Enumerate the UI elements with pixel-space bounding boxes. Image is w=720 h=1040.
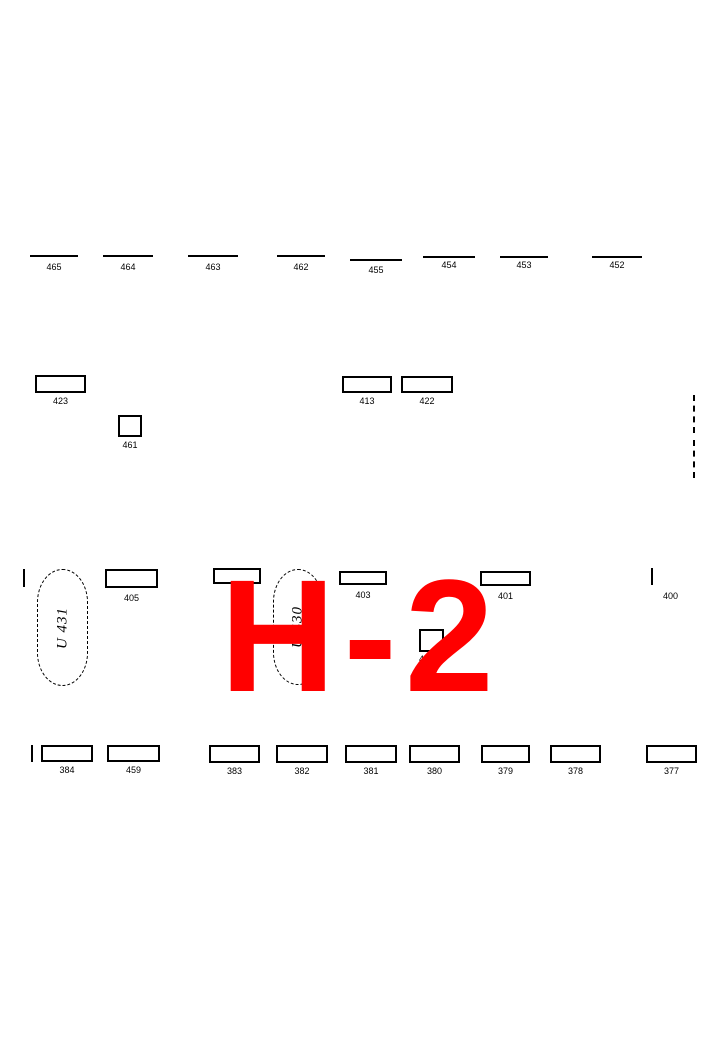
plot-rect	[276, 745, 328, 763]
section-title: H-2	[220, 556, 502, 716]
plot-rect	[481, 745, 530, 763]
plot-line	[103, 255, 153, 257]
plot-number: 379	[469, 767, 542, 776]
plot-number: 405	[93, 594, 170, 603]
plot-rect	[345, 745, 397, 763]
plot-line	[188, 255, 238, 257]
plot-number: 400	[663, 592, 678, 601]
plot-number: 462	[277, 263, 325, 272]
plot-number: 452	[592, 261, 642, 270]
cemetery-section-map: H-2 465464463462455454453452423413422461…	[0, 0, 720, 1040]
boundary-dashed-line	[693, 395, 695, 433]
plot-rect	[646, 745, 697, 763]
plot-number: 464	[103, 263, 153, 272]
plot-number: 383	[197, 767, 272, 776]
plot-rect	[105, 569, 158, 588]
plot-number: 465	[30, 263, 78, 272]
plot-number: 382	[264, 767, 340, 776]
plot-number: 380	[397, 767, 472, 776]
plot-line	[277, 255, 325, 257]
plot-rect	[209, 745, 260, 763]
plot-rect	[118, 415, 142, 437]
plot-number: 461	[106, 441, 154, 450]
plot-number: 454	[423, 261, 475, 270]
plot-number: 384	[29, 766, 105, 775]
row-edge-tick	[31, 745, 33, 762]
plot-line	[350, 259, 402, 261]
plot-line	[30, 255, 78, 257]
plot-number: 423	[23, 397, 98, 406]
plot-rect	[550, 745, 601, 763]
row-edge-tick	[23, 569, 25, 587]
plot-number: 459	[95, 766, 172, 775]
plot-number: 378	[538, 767, 613, 776]
plot-line	[500, 256, 548, 258]
row-edge-tick	[651, 568, 653, 585]
plot-line	[423, 256, 475, 258]
plot-line	[592, 256, 642, 258]
plot-rect	[401, 376, 453, 393]
urn-plot-number: U 431	[54, 606, 71, 648]
plot-rect	[342, 376, 392, 393]
plot-rect	[35, 375, 86, 393]
plot-number: 463	[188, 263, 238, 272]
plot-number: 455	[350, 266, 402, 275]
urn-plot: U 431	[37, 569, 88, 686]
plot-number: 422	[389, 397, 465, 406]
plot-rect	[41, 745, 93, 762]
plot-rect	[409, 745, 460, 763]
plot-rect	[107, 745, 160, 762]
plot-number: 377	[634, 767, 709, 776]
boundary-dashed-line	[693, 440, 695, 478]
plot-number: 453	[500, 261, 548, 270]
